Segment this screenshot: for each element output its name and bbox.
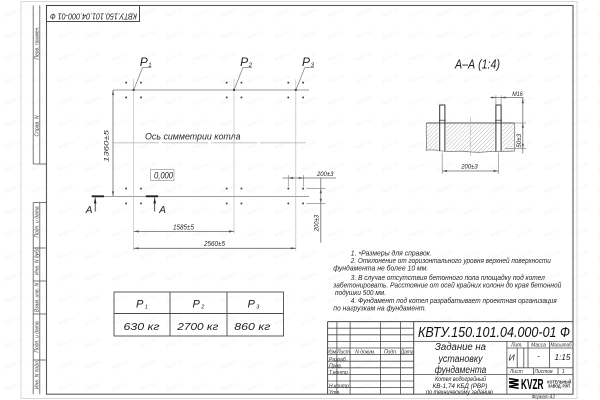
svg-text:N докум.: N докум. xyxy=(355,350,375,356)
svg-text:фундамента не более 10 мм.: фундамента не более 10 мм. xyxy=(333,263,428,272)
svg-text:200±3: 200±3 xyxy=(460,164,478,171)
svg-text:P: P xyxy=(140,55,148,69)
svg-text:-: - xyxy=(537,351,540,361)
svg-text:Пров.: Пров. xyxy=(329,364,342,370)
svg-text:КВТУ.150.101.04.000-01 Ф: КВТУ.150.101.04.000-01 Ф xyxy=(50,11,137,20)
svg-text:КВТУ.150.101.04.000-01 Ф: КВТУ.150.101.04.000-01 Ф xyxy=(418,325,570,341)
svg-text:2: 2 xyxy=(248,63,253,69)
svg-text:Листов: Листов xyxy=(533,369,553,375)
svg-text:1: 1 xyxy=(148,63,151,69)
svg-text:А–А (1:4): А–А (1:4) xyxy=(454,58,500,72)
svg-text:Масштаб: Масштаб xyxy=(551,343,572,349)
svg-text:2: 2 xyxy=(200,304,204,310)
svg-text:Утв.: Утв. xyxy=(329,390,340,396)
svg-text:установку: установку xyxy=(438,354,484,365)
svg-text:1:15: 1:15 xyxy=(555,353,571,362)
svg-text:50±3: 50±3 xyxy=(516,133,523,147)
svg-text:Разраб.: Разраб. xyxy=(329,357,347,363)
svg-text:Подп. и дата: Подп. и дата xyxy=(34,206,40,238)
svg-text:Справ. N: Справ. N xyxy=(34,115,40,136)
svg-text:фундамента: фундамента xyxy=(435,364,487,376)
svg-text:Подп.: Подп. xyxy=(384,350,397,356)
svg-text:И: И xyxy=(509,352,516,362)
svg-text:Инв. N дубл.: Инв. N дубл. xyxy=(34,246,40,275)
svg-text:2560±5: 2560±5 xyxy=(203,241,225,248)
svg-text:200±3: 200±3 xyxy=(316,171,334,178)
svg-text:860 кг: 860 кг xyxy=(234,321,270,333)
svg-text:1: 1 xyxy=(562,369,565,375)
svg-text:Н.контр.: Н.контр. xyxy=(329,383,350,389)
svg-text:Лист: Лист xyxy=(509,369,523,375)
svg-text:Взам. инв. N: Взам. инв. N xyxy=(34,283,40,313)
svg-text:Формат А3: Формат А3 xyxy=(532,395,555,400)
svg-text:1: 1 xyxy=(145,304,148,310)
svg-text:P: P xyxy=(302,55,310,69)
svg-text:Масса: Масса xyxy=(531,343,546,349)
svg-text:А: А xyxy=(158,205,166,216)
svg-text:Ось симметрии котла: Ось симметрии котла xyxy=(145,131,241,142)
svg-text:P: P xyxy=(240,55,248,69)
svg-text:Подп. и дата: Подп. и дата xyxy=(34,321,40,353)
svg-text:Инв. N подл.: Инв. N подл. xyxy=(34,360,40,389)
svg-text:630 кг: 630 кг xyxy=(124,321,160,333)
svg-text:P: P xyxy=(193,299,201,311)
svg-text:2700 кг: 2700 кг xyxy=(176,321,218,333)
svg-text:Лит.: Лит. xyxy=(510,343,523,349)
svg-text:0,000: 0,000 xyxy=(154,171,173,181)
svg-text:P: P xyxy=(248,299,256,311)
svg-text:М16: М16 xyxy=(512,91,523,98)
svg-text:Перв. примен.: Перв. примен. xyxy=(34,26,40,59)
svg-text:А: А xyxy=(85,205,93,216)
svg-text:по техническому заданию: по техническому заданию xyxy=(426,390,493,396)
svg-text:KVZR: KVZR xyxy=(521,376,544,393)
svg-text:200±3: 200±3 xyxy=(313,214,320,232)
svg-text:Котел водогрейный: Котел водогрейный xyxy=(435,376,487,383)
svg-text:Задание на: Задание на xyxy=(435,342,486,353)
svg-text:Дата: Дата xyxy=(399,350,413,356)
svg-text:по нагрузкам на фундамент.: по нагрузкам на фундамент. xyxy=(333,304,426,313)
svg-text:1585±5: 1585±5 xyxy=(173,225,194,232)
svg-text:Изм.: Изм. xyxy=(327,350,338,356)
svg-text:Т.контр.: Т.контр. xyxy=(329,370,349,376)
svg-text:P: P xyxy=(136,299,144,311)
svg-text:ЗАВОД. РЭП: ЗАВОД. РЭП xyxy=(548,384,570,389)
svg-text:Лист: Лист xyxy=(336,350,350,356)
svg-text:1360±5: 1360±5 xyxy=(103,130,110,162)
